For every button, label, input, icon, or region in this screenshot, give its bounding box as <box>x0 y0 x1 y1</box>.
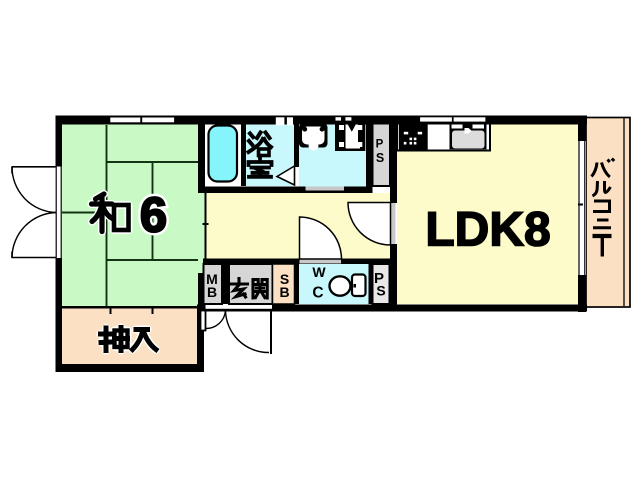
svg-text:6: 6 <box>140 189 167 243</box>
svg-text:B: B <box>279 284 289 300</box>
svg-text:C: C <box>312 285 323 302</box>
svg-text:S: S <box>376 151 384 165</box>
svg-text:S: S <box>376 283 385 299</box>
svg-text:LDK8: LDK8 <box>425 204 550 257</box>
svg-text:P: P <box>376 139 384 151</box>
svg-text:B: B <box>207 284 217 300</box>
svg-text:W: W <box>312 264 326 280</box>
